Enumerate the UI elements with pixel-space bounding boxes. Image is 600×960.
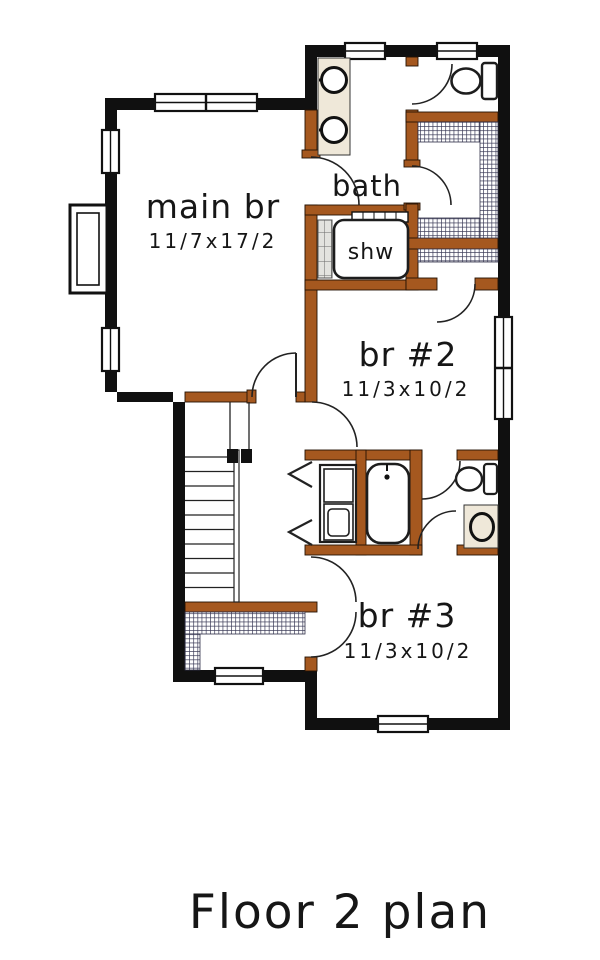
- window-main-br-left-lower: [102, 328, 119, 371]
- door-toilet-room: [412, 64, 452, 104]
- sink-vanity: [464, 505, 498, 548]
- sink-icon: [471, 514, 494, 541]
- door-walkin-closet: [412, 166, 451, 205]
- stair-treads: [185, 457, 234, 588]
- door-br2-closet: [437, 284, 475, 322]
- br3-dims: 11/3x10/2: [344, 639, 473, 663]
- window-main-br-left-upper: [102, 130, 119, 173]
- stair-railing: [234, 450, 239, 602]
- sink-icon: [319, 118, 347, 143]
- window-br2-right: [495, 317, 512, 419]
- toilet-icon: [452, 63, 498, 99]
- br2-dims: 11/3x10/2: [342, 377, 471, 401]
- hall-bath-vanity: [320, 465, 356, 542]
- toilet-icon: [456, 464, 497, 494]
- bath-label: bath: [332, 169, 402, 203]
- floor-plan-page: main br 11/7x17/2 bath shw br #2 11/3x10…: [0, 0, 600, 960]
- window-toilet-room-top: [437, 43, 477, 59]
- door-br2-entry: [312, 402, 357, 447]
- br3-label: br #3: [358, 596, 457, 635]
- window-bath-top: [345, 43, 385, 59]
- bay-window-box: [70, 205, 107, 293]
- door-wc-from-br2: [422, 461, 460, 499]
- window-closet-bottom: [215, 668, 263, 684]
- double-vanity: [318, 58, 350, 155]
- floor-plan-drawing: main br 11/7x17/2 bath shw br #2 11/3x10…: [0, 0, 600, 960]
- door-br3-entry: [311, 557, 356, 602]
- tub-faucet: [384, 474, 389, 479]
- bathtub: [367, 464, 409, 543]
- sink-icon: [319, 68, 347, 93]
- br2-label: br #2: [359, 335, 458, 374]
- door-main-br: [252, 353, 296, 397]
- main-br-dims: 11/7x17/2: [149, 229, 278, 253]
- shower-tile-shelf: [318, 220, 332, 278]
- door-wc-from-br3: [418, 511, 456, 549]
- bifold-door-marks: [289, 462, 312, 545]
- main-br-label: main br: [146, 187, 280, 226]
- stairs: [185, 402, 252, 602]
- window-main-br-top: [155, 94, 257, 111]
- shower-label: shw: [348, 240, 394, 265]
- plan-title: Floor 2 plan: [189, 885, 491, 940]
- window-br3-bottom: [378, 716, 428, 732]
